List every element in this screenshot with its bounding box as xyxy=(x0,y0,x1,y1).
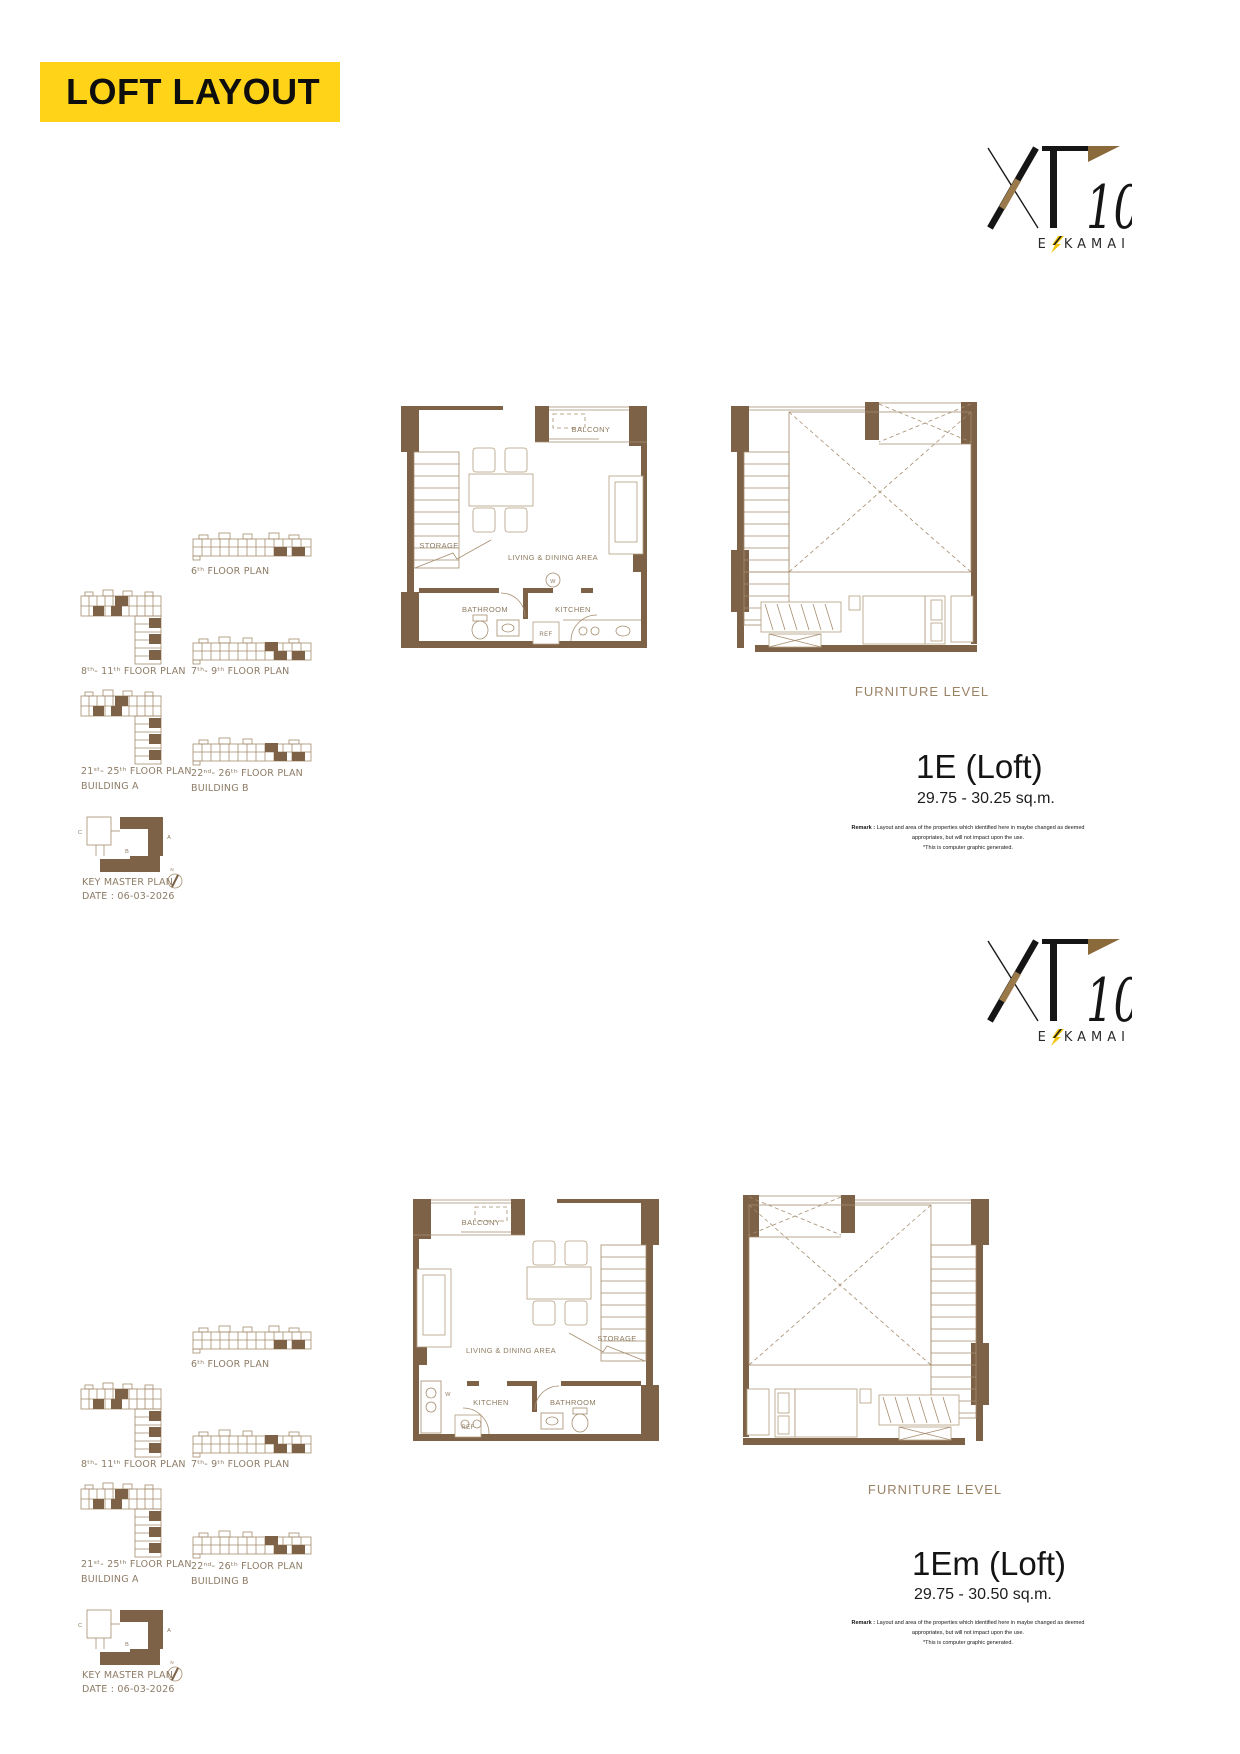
wardrobe xyxy=(761,602,841,632)
sofa xyxy=(609,476,643,554)
dining-set xyxy=(469,448,533,532)
keyplan-label-building-b: BUILDING B xyxy=(191,1576,249,1587)
keyplan-label-floor-8-11: 8ᵗʰ- 11ᵗʰ FLOOR PLAN xyxy=(81,666,186,677)
staircase xyxy=(931,1245,976,1418)
floor-plan-1e-layout: BALCONY STORAGE LIVING & DINING AREA BAT… xyxy=(395,390,665,668)
remark-block: Remark : Layout and area of the properti… xyxy=(852,1619,1085,1649)
ref-label: REF xyxy=(539,632,552,638)
highlighted-units xyxy=(93,1489,161,1553)
storage-label: STORAGE xyxy=(597,1334,636,1343)
highlighted-units xyxy=(93,596,161,660)
floor-plan-1e-furniture xyxy=(725,390,995,668)
keyplan-floor-7-9 xyxy=(191,1427,313,1461)
logo-sub-suffix: KAMAI xyxy=(1064,1030,1130,1045)
marker-n: N xyxy=(170,1660,173,1665)
brand-logo: 10 E KAMAI xyxy=(980,136,1132,253)
keyplan-label-floor-21-25: 21ˢᵗ- 25ᵗʰ FLOOR PLAN xyxy=(81,766,192,777)
storage-box xyxy=(769,634,821,647)
wardrobe xyxy=(879,1395,959,1425)
keyplan-label-floor-22-26: 22ⁿᵈ- 26ᵗʰ FLOOR PLAN xyxy=(191,768,303,779)
unit-name: 1Em (Loft) xyxy=(912,1545,1066,1583)
furniture-level-label: FURNITURE LEVEL xyxy=(855,684,989,699)
lightning-bolt-icon xyxy=(1051,1029,1064,1046)
keyplan-floor-8-11 xyxy=(79,584,167,666)
highlighted-units xyxy=(93,696,161,760)
section-unit-1e: 10 E KAMAI xyxy=(0,0,1240,880)
bathroom-label: BATHROOM xyxy=(462,605,508,614)
washer-label: W xyxy=(445,1392,451,1398)
keyplan-label-floor-6: 6ᵗʰ FLOOR PLAN xyxy=(191,566,269,577)
keyplan-label-floor-21-25: 21ˢᵗ- 25ᵗʰ FLOOR PLAN xyxy=(81,1559,192,1570)
master-plan-outline xyxy=(87,1610,120,1649)
keyplan-label-floor-7-9: 7ᵗʰ- 9ᵗʰ FLOOR PLAN xyxy=(191,1459,289,1470)
remark-line-1: Remark : Layout and area of the properti… xyxy=(852,1619,1085,1629)
bathroom-fixtures xyxy=(472,593,525,639)
sofa xyxy=(417,1269,451,1347)
keyplan-label-floor-8-11: 8ᵗʰ- 11ᵗʰ FLOOR PLAN xyxy=(81,1459,186,1470)
washer-label: W xyxy=(550,579,556,585)
remark-line-2: appropriates, but will not impact upon t… xyxy=(852,1629,1085,1639)
keyplan-floor-22-26 xyxy=(191,735,313,769)
bathroom-label: BATHROOM xyxy=(550,1398,596,1407)
balcony-label: BALCONY xyxy=(572,425,611,434)
bed xyxy=(747,1389,871,1437)
keyplan-label-floor-7-9: 7ᵗʰ- 9ᵗʰ FLOOR PLAN xyxy=(191,666,289,677)
furniture-level-label: FURNITURE LEVEL xyxy=(868,1482,1002,1497)
keyplan-floor-22-26 xyxy=(191,1528,313,1562)
logo-number: 10 xyxy=(1086,173,1132,230)
ref-label: REF xyxy=(461,1425,474,1431)
logo-sub-prefix: E xyxy=(1038,1030,1051,1045)
unit-area-range: 29.75 - 30.50 sq.m. xyxy=(914,1586,1052,1604)
keyplan-label-building-a: BUILDING A xyxy=(81,781,139,792)
bed xyxy=(849,596,973,644)
void-double-height xyxy=(749,1205,931,1365)
brand-logo-mark: 10 xyxy=(980,929,1132,1023)
living-dining-label: LIVING & DINING AREA xyxy=(466,1346,556,1355)
highlighted-units xyxy=(93,1389,161,1453)
logo-subtitle: E KAMAI xyxy=(980,1029,1132,1046)
keyplan-label-floor-22-26: 22ⁿᵈ- 26ᵗʰ FLOOR PLAN xyxy=(191,1561,303,1572)
kitchen-label: KITCHEN xyxy=(555,605,591,614)
keyplan-floor-6 xyxy=(191,530,313,564)
bathroom-fixtures xyxy=(535,1386,588,1432)
building-b-shape xyxy=(100,1649,160,1665)
lightning-bolt-icon xyxy=(1051,236,1064,253)
floor-plan-1em-layout: BALCONY STORAGE LIVING & DINING AREA BAT… xyxy=(395,1183,665,1461)
keyplan-label-floor-6: 6ᵗʰ FLOOR PLAN xyxy=(191,1359,269,1370)
keyplan-label-building-a: BUILDING A xyxy=(81,1574,139,1585)
brand-logo-mark: 10 xyxy=(980,136,1132,230)
logo-sub-suffix: KAMAI xyxy=(1064,237,1130,252)
keyplan-floor-6 xyxy=(191,1323,313,1357)
brochure-page: LOFT LAYOUT 10 E KAM xyxy=(0,0,1240,1754)
windows-and-balcony xyxy=(749,1196,971,1237)
highlighted-units xyxy=(265,1435,305,1453)
highlighted-units xyxy=(274,1340,305,1349)
unit-name: 1E (Loft) xyxy=(916,748,1043,786)
marker-a: A xyxy=(167,1628,171,1634)
marker-c: C xyxy=(78,1623,82,1629)
void-double-height xyxy=(789,412,971,572)
floor-plan-1em-furniture xyxy=(725,1183,995,1461)
highlighted-units xyxy=(274,547,305,556)
brand-logo: 10 E KAMAI xyxy=(980,929,1132,1046)
staircase xyxy=(744,452,789,625)
windows-and-balcony xyxy=(749,403,971,444)
key-master-plan-label: KEY MASTER PLAN xyxy=(82,1670,173,1681)
kitchen-fixtures xyxy=(421,1381,489,1437)
highlighted-units xyxy=(265,1536,305,1554)
logo-sub-prefix: E xyxy=(1038,237,1051,252)
storage-label: STORAGE xyxy=(419,541,458,550)
keyplan-floor-7-9 xyxy=(191,634,313,668)
remark-line-3: *This is computer graphic generated. xyxy=(852,1639,1085,1649)
keyplan-floor-8-11 xyxy=(79,1377,167,1459)
kitchen-label: KITCHEN xyxy=(473,1398,509,1407)
highlighted-units xyxy=(265,642,305,660)
storage-box xyxy=(899,1427,951,1440)
logo-number: 10 xyxy=(1086,966,1132,1023)
logo-subtitle: E KAMAI xyxy=(980,236,1132,253)
keyplan-floor-21-25 xyxy=(79,684,167,766)
keyplan-floor-21-25 xyxy=(79,1477,167,1559)
section-unit-1em: 10 E KAMAI xyxy=(0,793,1240,1673)
balcony-label: BALCONY xyxy=(462,1218,501,1227)
highlighted-units xyxy=(265,743,305,761)
marker-b: B xyxy=(125,1642,129,1648)
living-dining-label: LIVING & DINING AREA xyxy=(508,553,598,562)
dining-set xyxy=(527,1241,591,1325)
key-master-plan-date: DATE : 06-03-2026 xyxy=(82,1684,175,1695)
